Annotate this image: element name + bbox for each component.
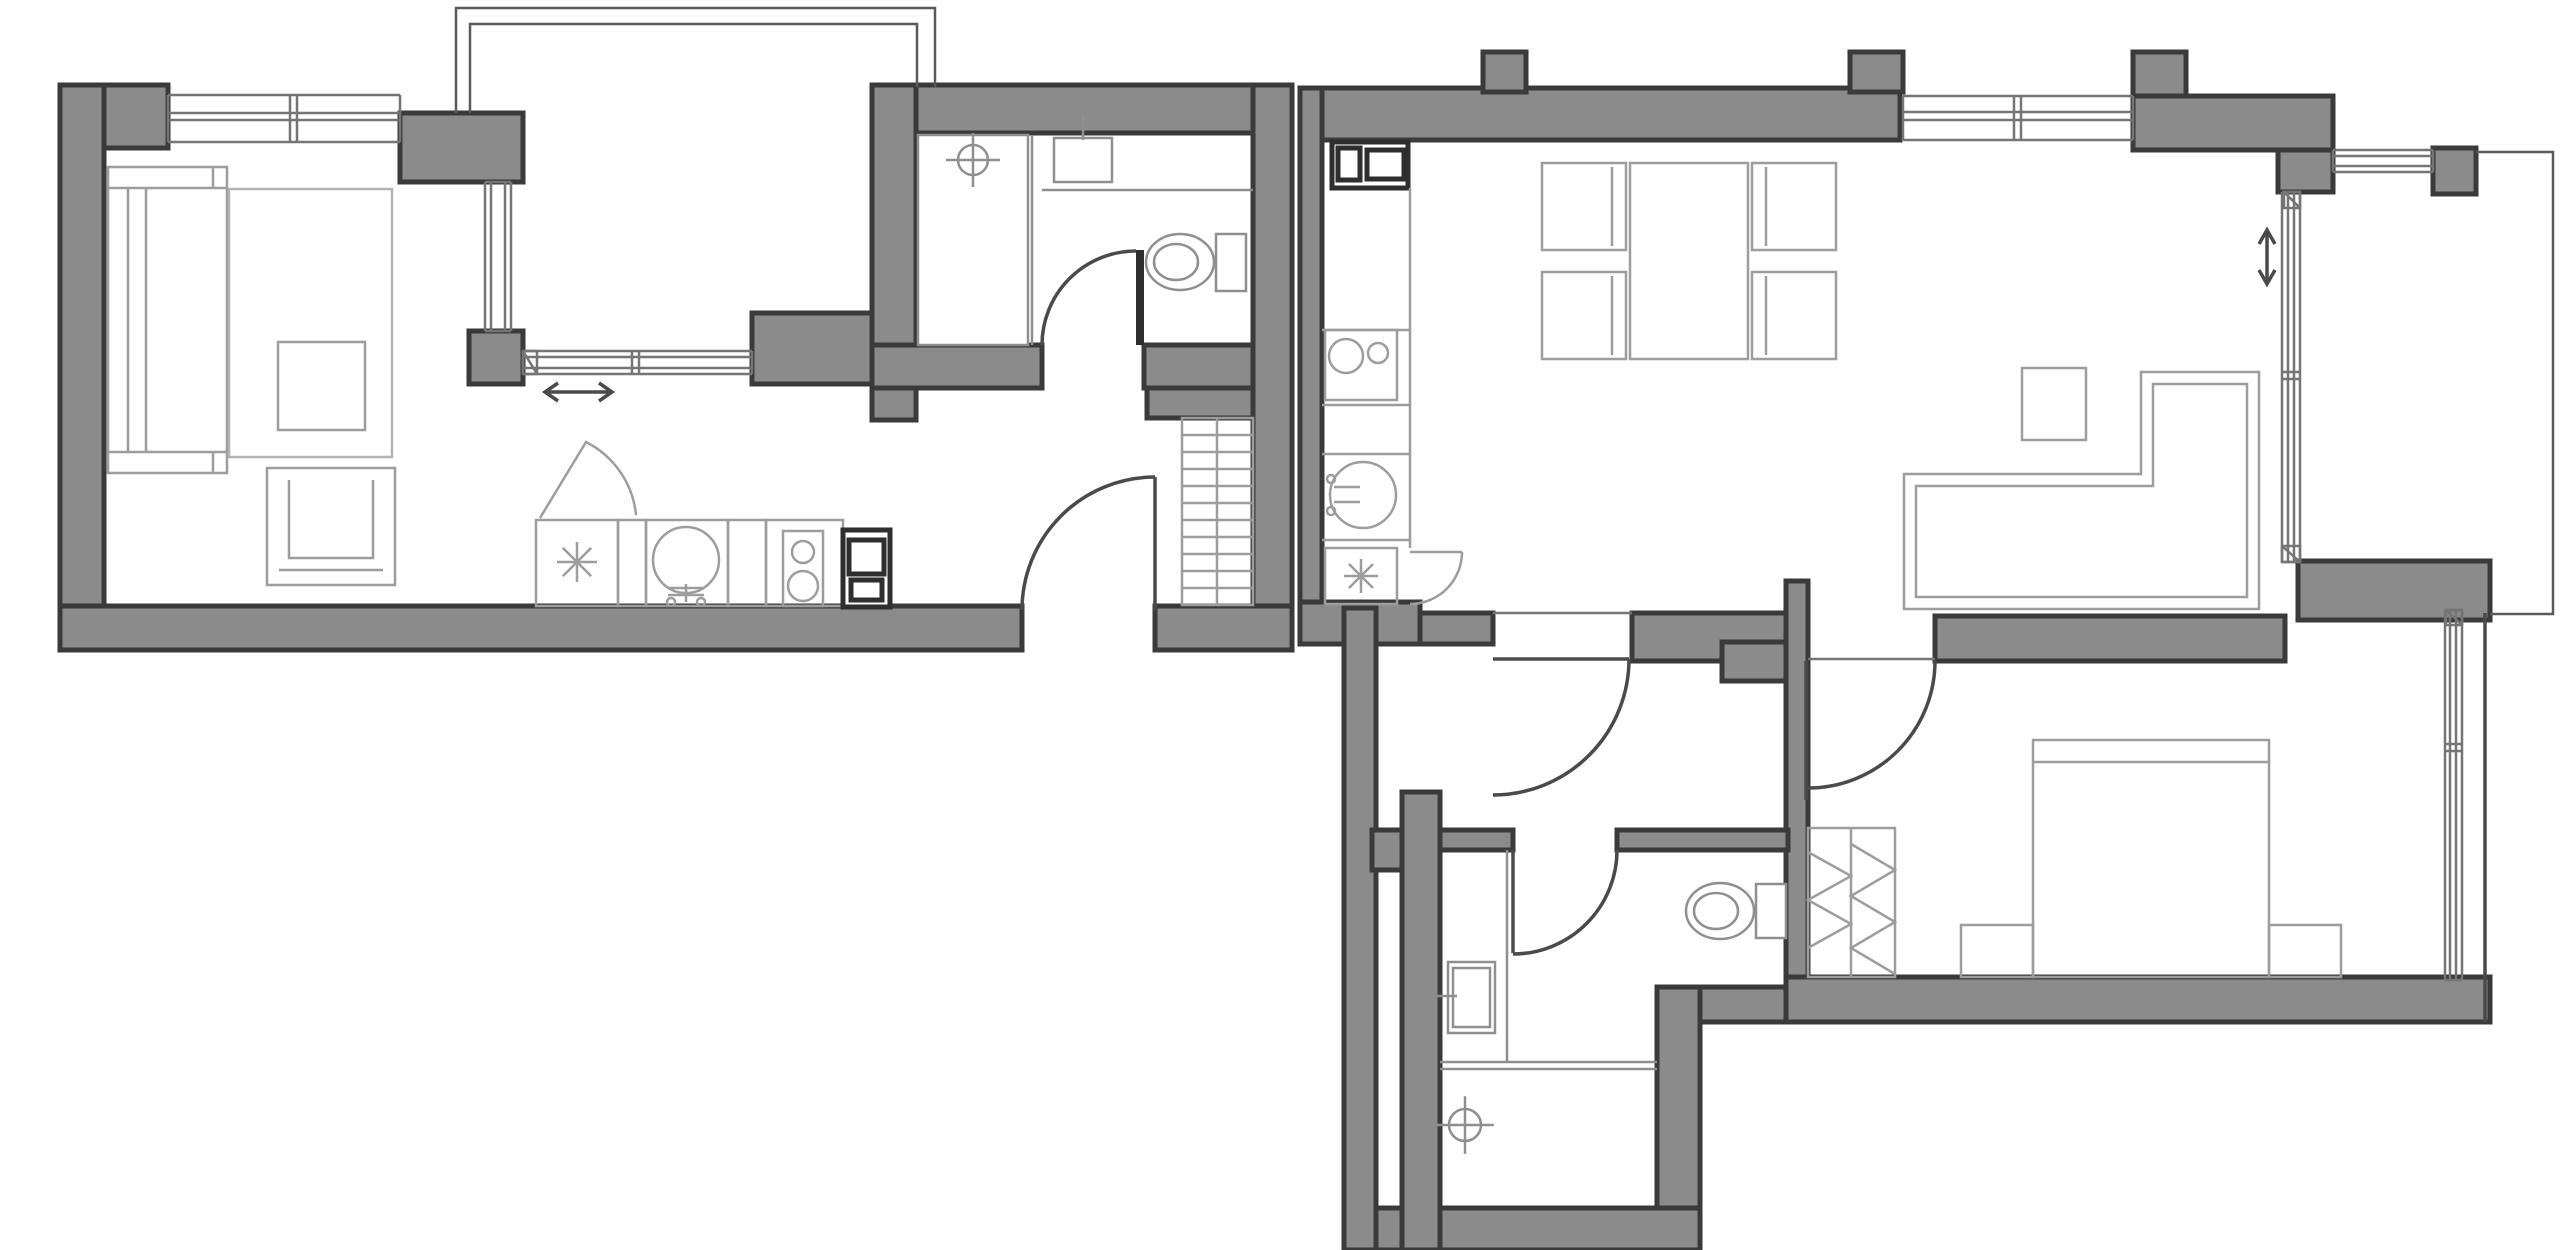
- wall-a-balcony-block-right: [752, 313, 874, 384]
- chair-b-bottom-left: [1542, 272, 1626, 359]
- dining-table-b: [1630, 163, 1748, 359]
- wall-b-pillar-2: [1850, 52, 1903, 92]
- fridge-a-door-swing: [540, 442, 636, 518]
- armchair-a-outline: [267, 468, 395, 585]
- nightstand-right: [2269, 925, 2341, 977]
- wall-b-pillar-3: [2133, 52, 2186, 96]
- stove-a-burner-1: [792, 541, 814, 563]
- wall-b-t-arm: [1722, 642, 1786, 681]
- wall-a-top-block: [400, 113, 523, 182]
- basin-b-inner: [1453, 968, 1490, 1027]
- bed: [2033, 740, 2269, 977]
- sink-a-bowl: [653, 527, 719, 593]
- wall-a-bath-bottom-left: [872, 345, 1042, 388]
- toilet-b-tank: [1756, 884, 1786, 938]
- rug-a: [229, 189, 392, 457]
- sink-b-knob-2: [1327, 507, 1335, 515]
- door-hall-b-swing: [1493, 659, 1629, 795]
- wall-b-bath-top-right: [1617, 830, 1788, 850]
- side-table-b: [2022, 368, 2086, 440]
- window-joint-diag-living-bottom: [2282, 546, 2300, 562]
- balcony-a-parapet-inner: [470, 24, 917, 113]
- sink-a-knob-1: [667, 598, 675, 606]
- wardrobe-hangers-right: [1851, 844, 1895, 974]
- wall-a-bottom-left: [60, 606, 1022, 650]
- wall-a-closet-top: [1147, 388, 1253, 418]
- stove-a-burner-2: [788, 571, 818, 601]
- sink-b-bowl: [1330, 462, 1396, 528]
- wall-b-zig-2: [1420, 613, 1493, 644]
- chair-b-top-right: [1752, 163, 1836, 250]
- partition-a-toilet: [1136, 250, 1144, 345]
- floor-plan-page: [0, 0, 2560, 1250]
- wall-b-top-right: [2133, 96, 2333, 150]
- stove-b-burner-2: [1368, 343, 1388, 363]
- wall-b-pillar-1: [1483, 52, 1526, 92]
- floor-plan-svg: [0, 0, 2560, 1250]
- shaft-b-inner-2: [1367, 150, 1404, 179]
- door-bedroom-b-swing: [1808, 661, 1935, 788]
- sink-b-knob-1: [1327, 475, 1335, 483]
- toilet-b-bowl-inner: [1694, 893, 1738, 929]
- wall-b-plus-arm: [1372, 830, 1402, 870]
- shaft-b-inner-1: [1338, 148, 1360, 180]
- balcony-b-outline: [2476, 152, 2553, 614]
- wall-b-tail-bottom: [1344, 1208, 1700, 1250]
- fridge-b-door-swing: [1410, 552, 1462, 604]
- door-bath-b-swing: [1513, 850, 1617, 954]
- shaft-a-inner-2: [851, 580, 882, 600]
- coffee-table-a: [278, 342, 365, 430]
- chair-b-bottom-right: [1752, 272, 1836, 359]
- wall-a-bottom-right: [1155, 606, 1292, 650]
- counter-a-box-2: [728, 520, 766, 606]
- door-bath-a-swing: [1042, 251, 1136, 345]
- toilet-a-bowl-inner: [1154, 244, 1198, 280]
- wardrobe-hangers-left: [1808, 852, 1851, 948]
- wall-b-bedroom-bottom: [1786, 977, 2490, 1022]
- toilet-a-tank: [1216, 234, 1246, 291]
- wall-b-outer-left: [1344, 608, 1376, 1250]
- slide-arrow-balcony-a: [545, 383, 612, 401]
- sofa-b-outline: [1904, 372, 2259, 609]
- basin-a: [1054, 138, 1112, 182]
- shaft-a-inner-1: [849, 540, 884, 574]
- wall-b-top-corner: [2278, 150, 2333, 192]
- wall-b-top-left: [1300, 88, 1900, 140]
- slide-arrow-living-b: [2259, 230, 2275, 284]
- sink-a-knob-2: [697, 598, 705, 606]
- sofa-b-inner: [1916, 384, 2247, 597]
- stove-b-burner-1: [1329, 339, 1363, 373]
- wall-b-bedroom-top: [1935, 616, 2285, 661]
- armchair-a-seat: [289, 480, 373, 558]
- wall-a-right: [1253, 85, 1292, 650]
- wall-b-bath-top-left: [1440, 830, 1513, 850]
- wall-b-inner-left: [1402, 792, 1440, 1250]
- wall-a-balcony-block-left: [469, 331, 523, 384]
- wall-b-left: [1300, 88, 1322, 644]
- counter-a-box-1: [618, 520, 646, 606]
- wall-a-left: [60, 85, 104, 650]
- wall-a-bath-bottom-right: [1144, 345, 1253, 388]
- nightstand-left: [1961, 925, 2033, 977]
- wall-b-balcony-pillar: [2433, 148, 2476, 194]
- sofa-a-outline: [108, 167, 227, 473]
- door-entry-a-swing: [1022, 477, 1155, 610]
- chair-b-top-left: [1542, 163, 1626, 250]
